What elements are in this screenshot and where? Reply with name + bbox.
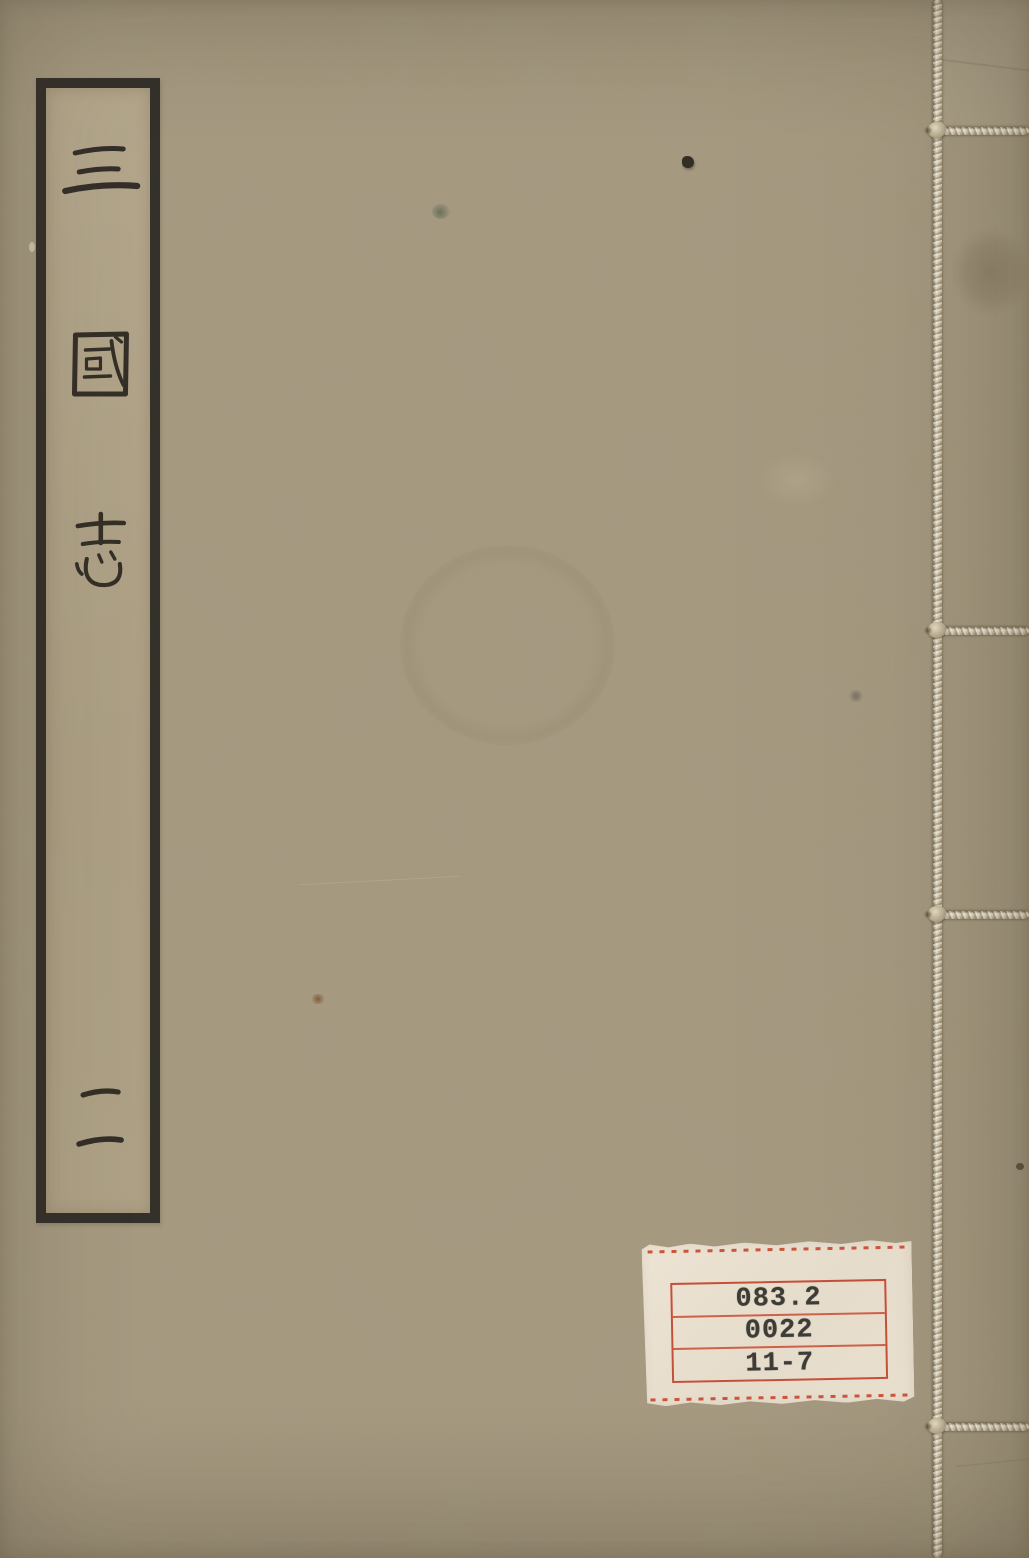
title-char-guo: 國 bbox=[69, 328, 131, 400]
title-char-san: 三 bbox=[61, 142, 141, 198]
pale-stain bbox=[758, 452, 836, 508]
title-char-zhi: 志 bbox=[66, 511, 136, 595]
binding-thread-vertical bbox=[933, 0, 942, 1558]
title-char-guo-glyph bbox=[69, 328, 131, 400]
slate-speck bbox=[849, 690, 863, 702]
title-label: 三 國 志 bbox=[36, 78, 160, 1223]
stitch-hole bbox=[924, 126, 932, 135]
stitch-hole bbox=[924, 626, 932, 635]
binding-stitch-4 bbox=[939, 1423, 1029, 1431]
call-number-box: 083.2 0022 11-7 bbox=[670, 1279, 888, 1383]
binding-stitch-2 bbox=[939, 627, 1029, 635]
call-number-line-1: 083.2 bbox=[672, 1281, 885, 1318]
volume-char-er: 二 bbox=[74, 1082, 126, 1154]
gray-speck bbox=[432, 204, 450, 219]
book-cover: 三 國 志 bbox=[0, 0, 1029, 1558]
library-label: 083.2 0022 11-7 bbox=[641, 1239, 914, 1406]
call-number-line-3: 11-7 bbox=[674, 1346, 887, 1381]
crease-line bbox=[300, 876, 460, 885]
title-char-zhi-glyph bbox=[66, 511, 136, 595]
binding-stitch-3 bbox=[939, 911, 1029, 919]
stitch-hole bbox=[924, 910, 932, 919]
perforation-dashes-bottom bbox=[650, 1394, 908, 1402]
stitch-hole bbox=[924, 1422, 932, 1431]
edge-stain bbox=[952, 228, 1029, 316]
light-speck bbox=[29, 242, 35, 252]
cover-corner bbox=[942, 0, 1029, 127]
tiny-speck bbox=[1016, 1163, 1024, 1170]
perforation-dashes-top bbox=[648, 1246, 906, 1254]
ink-speck bbox=[682, 156, 694, 168]
title-char-san-glyph bbox=[61, 142, 141, 198]
binding-stitch-1 bbox=[939, 127, 1029, 135]
volume-char-er-glyph bbox=[74, 1082, 126, 1154]
water-stain bbox=[400, 545, 615, 745]
crease-line bbox=[955, 1458, 1029, 1467]
call-number-line-2: 0022 bbox=[673, 1314, 886, 1351]
rust-speck bbox=[311, 994, 325, 1004]
